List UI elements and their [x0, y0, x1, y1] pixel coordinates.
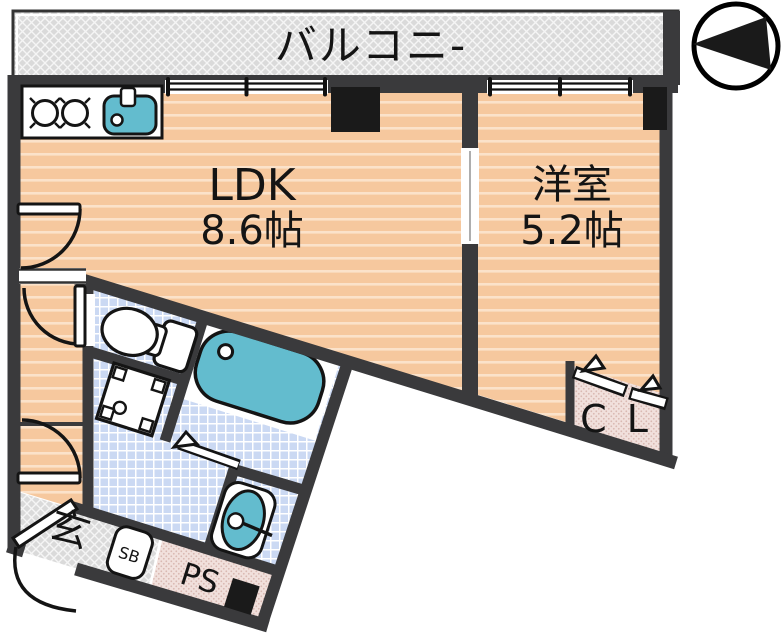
- kitchen-counter: [22, 86, 162, 138]
- floorplan-drawing: SB バルコニ- LDK 8.6帖 洋: [0, 0, 782, 633]
- western-room-label: 洋室: [532, 162, 612, 208]
- toilet-door-leaf: [75, 286, 85, 346]
- wall-balcony-right: [663, 11, 680, 85]
- corridor-door-leaf: [18, 473, 80, 483]
- balcony-label: バルコニ-: [275, 21, 467, 70]
- pillar-ldk: [331, 87, 380, 132]
- compass-north-left-icon: [693, 4, 778, 88]
- floorplan-page: SB バルコニ- LDK 8.6帖 洋: [0, 0, 782, 633]
- ldk-size-label: 8.6帖: [200, 208, 304, 254]
- sink-faucet-icon: [121, 88, 135, 106]
- western-room-size-label: 5.2帖: [520, 208, 624, 254]
- sink-drain-icon: [112, 115, 123, 126]
- ldk-label: LDK: [208, 160, 296, 211]
- ldk-door-leaf: [18, 204, 80, 214]
- closet-label: C L: [580, 397, 652, 441]
- pillar-western: [643, 87, 667, 130]
